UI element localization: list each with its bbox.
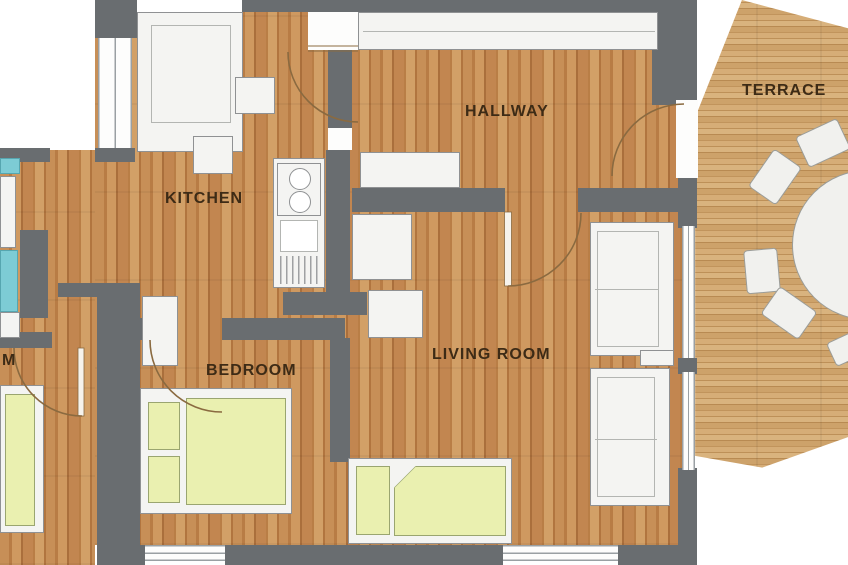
door-leaf	[78, 348, 84, 416]
door-arc	[508, 213, 581, 286]
hallway-label: HALLWAY	[465, 103, 549, 121]
terrace-label: TERRACE	[742, 82, 826, 100]
door-leaf	[505, 212, 512, 286]
door-arcs-layer	[0, 0, 848, 565]
floor-plan: KITCHEN HALLWAY TERRACE LIVING ROOM BEDR…	[0, 0, 848, 565]
door-arc	[288, 52, 358, 122]
door-arc	[14, 348, 82, 416]
living-room-label: LIVING ROOM	[432, 346, 551, 364]
kitchen-label: KITCHEN	[165, 190, 243, 208]
bedroom-label: BEDROOM	[206, 362, 297, 380]
door-arc	[612, 104, 684, 176]
partial-room-label: M	[2, 352, 16, 370]
